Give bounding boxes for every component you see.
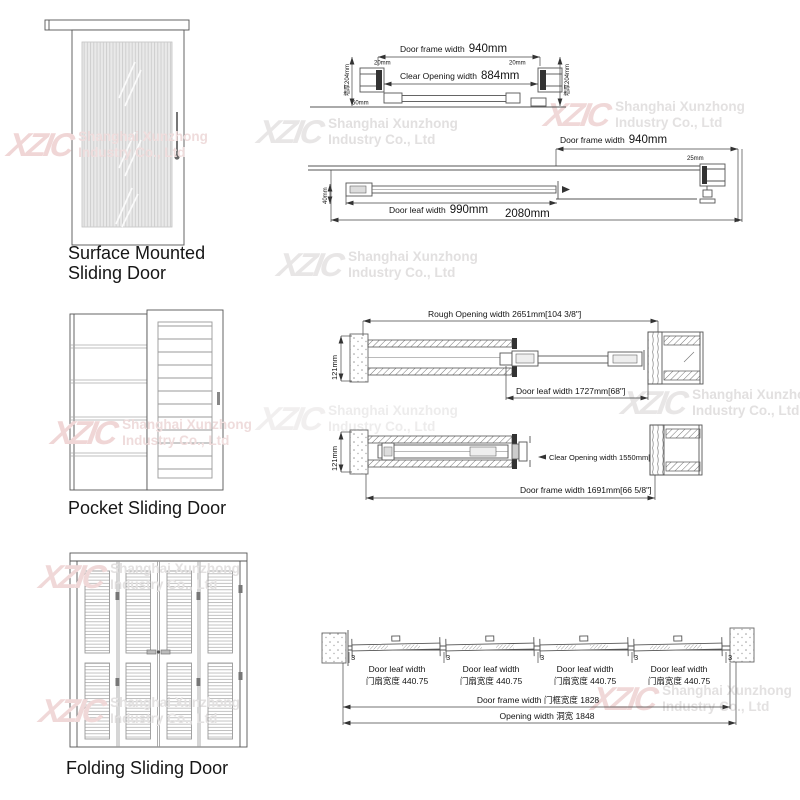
caption-line-2: Sliding Door [68,263,205,283]
dim-door-frame-width: Door frame width 1691mm[66 5/8"] [520,485,652,495]
dim-total-width: 2080mm [505,208,550,220]
door-handle [147,650,170,654]
dim-leaf-value: 门扇宽度 440.75 [460,676,523,686]
caption-pocket: Pocket Sliding Door [68,498,226,518]
dim-gap: 3 [351,653,355,662]
dim-gap: 3 [540,653,544,662]
dim-clear-opening: Clear Opening width884mm [400,70,519,82]
pocket-door-illustration [70,310,223,490]
dim-door-frame-width: Door frame width940mm [560,134,667,146]
pocket-open-plan: Clear Opening width 1550mm[61"] 121mm Do… [330,425,702,500]
dim-wall-thickness-left: 墙厚204mm [343,64,351,96]
dim-wall-thickness-right: 墙厚204mm [563,64,571,96]
surface-mounted-door-illustration [45,20,189,245]
dim-offset-right: 20mm [509,61,526,67]
door-handle [174,154,179,159]
dim-door-leaf-width: Door leaf width 1727mm[68"] [516,386,625,396]
dim-gap: 3 [728,653,732,662]
folding-door-illustration [70,553,247,747]
caption-line-1: Surface Mounted [68,243,205,263]
dim-wall-thickness: 121mm [330,446,339,471]
dim-leaf-value: 门扇宽度 440.75 [554,676,617,686]
folding-leaves [352,635,722,658]
dim-jamb-offset: 25mm [687,156,704,162]
dim-leaf-label: Door leaf width [463,664,520,674]
caption-folding: Folding Sliding Door [66,758,228,778]
folding-plan: 3 3 3 3 3 Door leaf width 门扇宽度 440.75 Do… [322,628,754,725]
dim-rough-opening: Rough Opening width 2651mm[104 3/8"] [428,309,581,319]
dim-door-leaf-width: Door leaf width990mm [389,204,488,216]
dim-clear-opening: Clear Opening width 1550mm[61"] [549,453,663,462]
dim-door-frame-width: Door frame width 门框宽度 1828 [477,695,600,705]
dim-gap: 3 [446,653,450,662]
caption-surface-mounted: Surface Mounted Sliding Door [68,243,205,283]
dim-wall-thickness: 121mm [330,355,339,380]
dim-bottom-offset: 50mm [352,101,369,107]
pocket-closed-plan: Rough Opening width 2651mm[104 3/8"] [330,309,703,400]
dim-leaf-label: Door leaf width [651,664,708,674]
dim-side-offset: 40mm [323,187,329,204]
dim-opening-width: Opening width 洞宽 1848 [500,711,595,721]
dim-gap: 3 [634,653,638,662]
dim-offset-left: 20mm [374,61,391,67]
door-drawings-canvas: Door frame width940mm 20mm 20mm Clear Op… [0,0,800,800]
dim-leaf-label: Door leaf width [557,664,614,674]
surface-open-plan: Door frame width940mm 25mm Door leaf wid… [308,134,742,222]
dim-leaf-value: 门扇宽度 440.75 [648,676,711,686]
dim-leaf-label: Door leaf width [369,664,426,674]
door-handle [217,392,220,405]
surface-closed-plan: Door frame width940mm 20mm 20mm Clear Op… [310,43,571,107]
catalog-page: XZIC Shanghai XunzhongIndustry Co., Ltd … [0,0,800,800]
dim-door-frame-width: Door frame width940mm [400,43,507,55]
dim-leaf-value: 门扇宽度 440.75 [366,676,429,686]
